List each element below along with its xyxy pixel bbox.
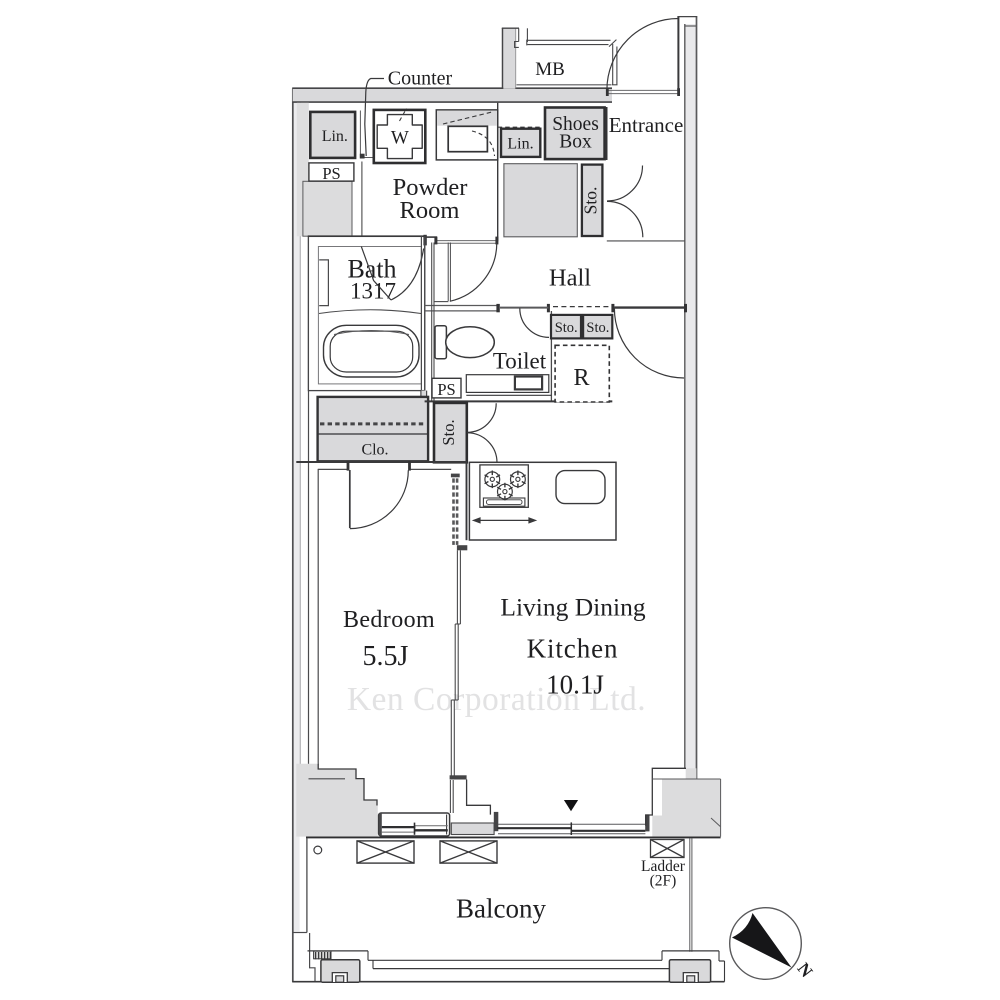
svg-text:Toilet: Toilet — [493, 349, 547, 374]
svg-text:Clo.: Clo. — [361, 442, 388, 459]
svg-text:Lin.: Lin. — [322, 128, 348, 145]
svg-text:Room: Room — [400, 197, 460, 224]
svg-text:Lin.: Lin. — [507, 136, 533, 153]
svg-text:10.1J: 10.1J — [546, 670, 604, 700]
svg-text:(2F): (2F) — [650, 873, 677, 890]
svg-text:Kitchen: Kitchen — [527, 634, 619, 664]
svg-text:Counter: Counter — [388, 68, 453, 90]
svg-text:5.5J: 5.5J — [363, 641, 409, 672]
svg-text:Sto.: Sto. — [439, 419, 458, 445]
svg-text:Living Dining: Living Dining — [500, 593, 645, 622]
svg-text:1317: 1317 — [350, 279, 396, 304]
svg-text:PS: PS — [322, 164, 340, 183]
svg-text:Sto.: Sto. — [581, 187, 601, 215]
svg-text:PS: PS — [437, 380, 455, 399]
svg-text:R: R — [573, 365, 589, 391]
svg-text:Sto.: Sto. — [555, 320, 578, 336]
svg-text:Bedroom: Bedroom — [343, 607, 435, 633]
svg-text:Entrance: Entrance — [609, 113, 684, 137]
svg-text:Balcony: Balcony — [456, 894, 546, 924]
svg-text:MB: MB — [535, 59, 565, 80]
svg-text:Sto.: Sto. — [586, 320, 609, 336]
svg-text:Hall: Hall — [549, 265, 591, 292]
svg-text:W: W — [391, 128, 409, 149]
svg-text:Box: Box — [559, 132, 592, 153]
